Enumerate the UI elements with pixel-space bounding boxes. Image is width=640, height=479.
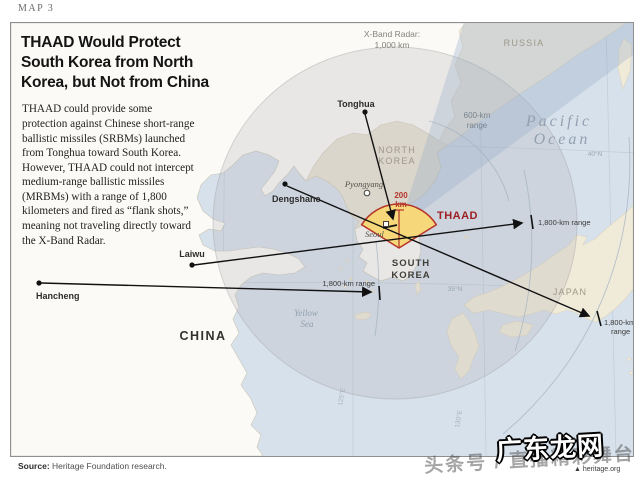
hancheng-dot bbox=[36, 280, 41, 285]
south-korea-label-line2: KOREA bbox=[391, 270, 430, 281]
south-korea-label-line1: SOUTH bbox=[392, 258, 430, 269]
source-line: Source: Heritage Foundation research. bbox=[18, 461, 167, 471]
yellow-sea-label-line1: Yellow bbox=[294, 308, 318, 318]
watermark-title: 广东龙网 bbox=[495, 425, 605, 468]
pyongyang-marker bbox=[364, 190, 370, 196]
russia-label: RUSSIA bbox=[504, 38, 545, 48]
range-1800-japan-label-line2: range bbox=[611, 327, 630, 336]
range-200-label-line2: km bbox=[395, 200, 407, 209]
hancheng-label: Hancheng bbox=[36, 291, 80, 301]
map-number-label: MAP 3 bbox=[18, 3, 54, 14]
infobox: THAAD Would Protect South Korea from Nor… bbox=[21, 33, 257, 248]
seoul-label: Seoul bbox=[365, 229, 385, 239]
tonghua-dot bbox=[362, 109, 367, 114]
yellow-sea-label-line2: Sea bbox=[301, 319, 314, 329]
pacific-ocean-label-line2: Ocean bbox=[534, 131, 591, 148]
dengshahe-dot bbox=[282, 181, 287, 186]
pyongyang-label: Pyongyang bbox=[344, 179, 383, 189]
range-tick-west bbox=[379, 286, 380, 300]
japan-label: JAPAN bbox=[553, 287, 587, 297]
tonghua-label: Tonghua bbox=[337, 99, 375, 109]
map-title-line1: THAAD Would Protect bbox=[21, 33, 257, 53]
range-1800-west-label: 1,800-km range bbox=[322, 279, 375, 288]
laiwu-dot bbox=[189, 262, 194, 267]
map-description: THAAD could provide some protection agai… bbox=[22, 102, 200, 248]
range-600-label-line2: range bbox=[467, 121, 488, 130]
dengshahe-label: Dengshahe bbox=[272, 194, 321, 204]
china-label: CHINA bbox=[179, 329, 226, 343]
latitude-40n-label: 40°N bbox=[588, 150, 603, 158]
map-title-line3: Korea, but Not from China bbox=[21, 73, 257, 93]
latitude-35n-label: 35°N bbox=[448, 285, 463, 293]
range-600-label-line1: 600-km bbox=[464, 111, 491, 120]
range-200-label-line1: 200 bbox=[394, 191, 408, 200]
map-title-line2: South Korea from North bbox=[21, 53, 257, 73]
source-label: Source: bbox=[18, 461, 50, 471]
thaad-label: THAAD bbox=[437, 210, 478, 222]
xband-radar-label-line2: 1,000 km bbox=[375, 40, 410, 50]
range-1800-japan-label-line1: 1,800-km bbox=[604, 318, 633, 327]
north-korea-label-line2: KOREA bbox=[378, 156, 416, 166]
xband-radar-label-line1: X-Band Radar: bbox=[364, 29, 420, 39]
laiwu-label: Laiwu bbox=[179, 249, 205, 259]
range-1800-east-label: 1,800-km range bbox=[538, 218, 591, 227]
map-title: THAAD Would Protect South Korea from Nor… bbox=[21, 33, 257, 92]
source-text: Heritage Foundation research. bbox=[50, 461, 167, 471]
pacific-ocean-label-line1: Pacific bbox=[525, 113, 592, 130]
seoul-marker bbox=[384, 222, 389, 227]
north-korea-label-line1: NORTH bbox=[378, 145, 416, 155]
